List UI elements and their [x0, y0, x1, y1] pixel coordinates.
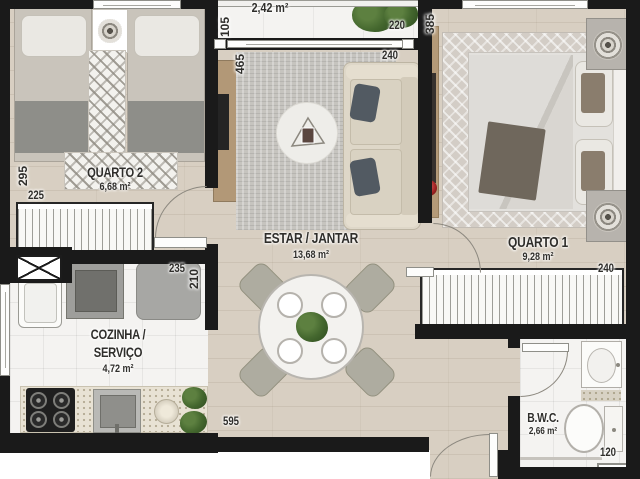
door-leaf-quarto1: [406, 267, 434, 277]
room-name-cozinha-1: COZINHA /: [70, 327, 166, 342]
lamp-icon: [593, 30, 623, 60]
bed-throw: [478, 121, 545, 200]
washer-door: [75, 270, 117, 312]
window: [0, 284, 10, 376]
wall: [508, 334, 520, 348]
room-name-bwc: B.W.C.: [521, 411, 566, 425]
room-area-bwc: 2,66 m²: [520, 427, 566, 438]
floor-plan: 2,42 m² 105 220 385 QUARTO 2 6,68 m² 295…: [0, 0, 640, 479]
accent-cushion: [581, 151, 605, 191]
laundry-tub: [18, 276, 62, 328]
dim-varanda-depth: 105: [219, 11, 234, 43]
room-area-varanda: 2,42 m²: [240, 1, 301, 15]
wardrobe-quarto2: [16, 202, 154, 252]
nightstand-quarto2: [92, 9, 128, 53]
burner-icon: [30, 411, 47, 428]
burner-icon: [53, 392, 70, 409]
room-area-cozinha: 4,72 m²: [69, 364, 167, 376]
door-jamb: [402, 39, 414, 49]
wash-basin: [587, 348, 616, 383]
room-name-estar: ESTAR / JANTAR: [253, 231, 370, 247]
dim-varanda-width: 220: [383, 19, 410, 32]
single-bed-right: [127, 8, 205, 162]
room-area-estar: 13,68 m²: [251, 250, 371, 262]
door-leaf-quarto2: [154, 237, 207, 248]
table-centerpiece-plant: [296, 312, 328, 342]
wall: [626, 0, 640, 479]
bowl-decor: [154, 399, 179, 424]
coffee-table: [289, 114, 327, 154]
room-area-quarto1: 9,28 m²: [487, 252, 589, 264]
bathroom-vanity: [581, 341, 622, 388]
plate: [277, 292, 303, 318]
dim-estar-depth: 465: [234, 47, 250, 81]
wardrobe-quarto1: [420, 268, 624, 330]
sofa-armrest: [346, 213, 418, 227]
dim-estar-width: 240: [376, 49, 405, 62]
dim-total-width: 595: [216, 415, 246, 428]
shaft-icon: [16, 255, 62, 281]
wall: [415, 324, 626, 339]
dim-cozinha-depth: 210: [188, 264, 204, 294]
clock-decor-icon: [98, 19, 122, 43]
wall: [0, 0, 10, 453]
room-area-quarto2: 6,68 m²: [64, 182, 166, 194]
kitchen-sink: [93, 389, 141, 433]
accent-cushion: [581, 73, 605, 113]
sofa-back: [400, 77, 418, 215]
room-name-quarto1: QUARTO 1: [488, 235, 587, 251]
entry-door-leaf: [489, 433, 498, 477]
stove: [26, 388, 75, 432]
dim-quarto1-depth: 385: [424, 8, 439, 40]
sofa: [343, 62, 421, 230]
burner-icon: [30, 392, 47, 409]
nightstand-quarto1: [586, 18, 628, 70]
lamp-icon: [593, 202, 623, 232]
blanket: [15, 101, 91, 153]
wall: [0, 433, 218, 453]
wall: [205, 0, 218, 188]
plate: [321, 292, 347, 318]
shower-divider: [520, 457, 602, 460]
room-name-cozinha-2: SERVIÇO: [70, 345, 166, 360]
burner-icon: [53, 411, 70, 428]
double-bed: [468, 52, 628, 212]
plate: [277, 338, 303, 364]
bath-mat: [581, 390, 621, 401]
plant: [182, 387, 207, 409]
wall: [508, 467, 640, 479]
single-bed-left: [14, 8, 92, 162]
flush-icon: [612, 428, 616, 432]
window: [462, 0, 588, 9]
outside-area: [0, 450, 430, 479]
tub-basin: [24, 283, 57, 323]
sliding-door: [227, 40, 411, 48]
blanket: [128, 101, 204, 153]
dim-bwc-width: 120: [595, 446, 621, 459]
pillow: [21, 15, 87, 57]
runner-rug: [88, 50, 126, 166]
pillow: [134, 15, 200, 57]
nightstand-quarto1: [586, 190, 628, 242]
faucet-icon: [115, 424, 119, 433]
tap-icon: [616, 363, 620, 367]
dim-quarto2-width: 225: [20, 189, 52, 202]
room-name-quarto2: QUARTO 2: [65, 165, 164, 180]
washing-machine: [66, 261, 124, 319]
wall: [213, 437, 429, 452]
window: [93, 0, 181, 9]
dim-quarto1-width: 240: [592, 262, 621, 275]
plate: [321, 338, 347, 364]
